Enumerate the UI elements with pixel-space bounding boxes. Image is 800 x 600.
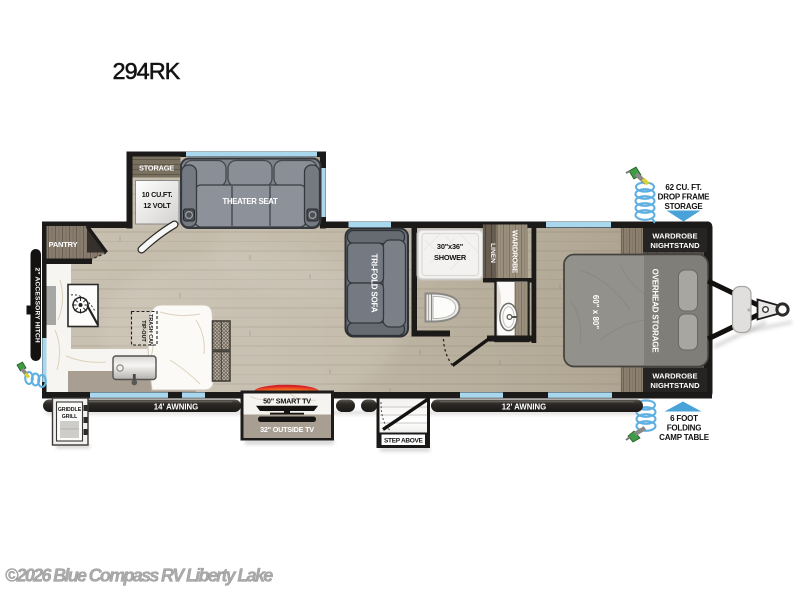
svg-text:10 CU.FT.: 10 CU.FT. [142, 190, 173, 199]
svg-text:©2026 Blue Compass RV Liberty: ©2026 Blue Compass RV Liberty Lake [5, 566, 273, 586]
svg-text:WARDROBE: WARDROBE [511, 230, 520, 273]
svg-text:NIGHTSTAND: NIGHTSTAND [650, 241, 700, 250]
svg-text:STEP ABOVE: STEP ABOVE [384, 438, 424, 445]
svg-text:WARDROBE: WARDROBE [652, 232, 697, 241]
svg-text:FOLDING: FOLDING [667, 424, 702, 433]
svg-text:STORAGE: STORAGE [139, 164, 174, 173]
svg-text:STORAGE: STORAGE [664, 202, 703, 211]
svg-text:30"x36": 30"x36" [437, 242, 464, 251]
svg-text:WARDROBE: WARDROBE [652, 372, 697, 381]
svg-text:50" SMART TV: 50" SMART TV [263, 397, 311, 406]
svg-text:32" OUTSIDE TV: 32" OUTSIDE TV [260, 425, 314, 434]
svg-text:CAMP TABLE: CAMP TABLE [659, 433, 710, 442]
svg-text:TRASH CAN: TRASH CAN [147, 314, 153, 346]
svg-text:GRIDDLE: GRIDDLE [58, 407, 82, 413]
svg-text:294RK: 294RK [113, 58, 181, 84]
svg-text:GRILL: GRILL [62, 414, 78, 420]
svg-text:62 CU. FT.: 62 CU. FT. [665, 183, 701, 192]
svg-text:DROP FRAME: DROP FRAME [658, 193, 710, 202]
svg-text:14' AWNING: 14' AWNING [154, 403, 198, 412]
svg-text:60" x 80": 60" x 80" [591, 295, 600, 329]
svg-text:PANTRY: PANTRY [49, 240, 78, 249]
svg-text:12 VOLT: 12 VOLT [143, 201, 171, 210]
svg-text:THEATER SEAT: THEATER SEAT [222, 197, 278, 206]
svg-text:SHOWER: SHOWER [434, 253, 467, 262]
svg-text:TIP-OUT: TIP-OUT [140, 320, 146, 342]
svg-text:6 FOOT: 6 FOOT [670, 414, 698, 423]
svg-text:NIGHTSTAND: NIGHTSTAND [650, 381, 700, 390]
svg-text:2" ACCESSORY HITCH: 2" ACCESSORY HITCH [33, 268, 40, 343]
svg-text:LINEN: LINEN [489, 243, 496, 263]
svg-text:OVERHEAD STORAGE: OVERHEAD STORAGE [651, 269, 660, 354]
svg-text:TRI-FOLD SOFA: TRI-FOLD SOFA [370, 254, 379, 313]
svg-text:12' AWNING: 12' AWNING [502, 403, 546, 412]
